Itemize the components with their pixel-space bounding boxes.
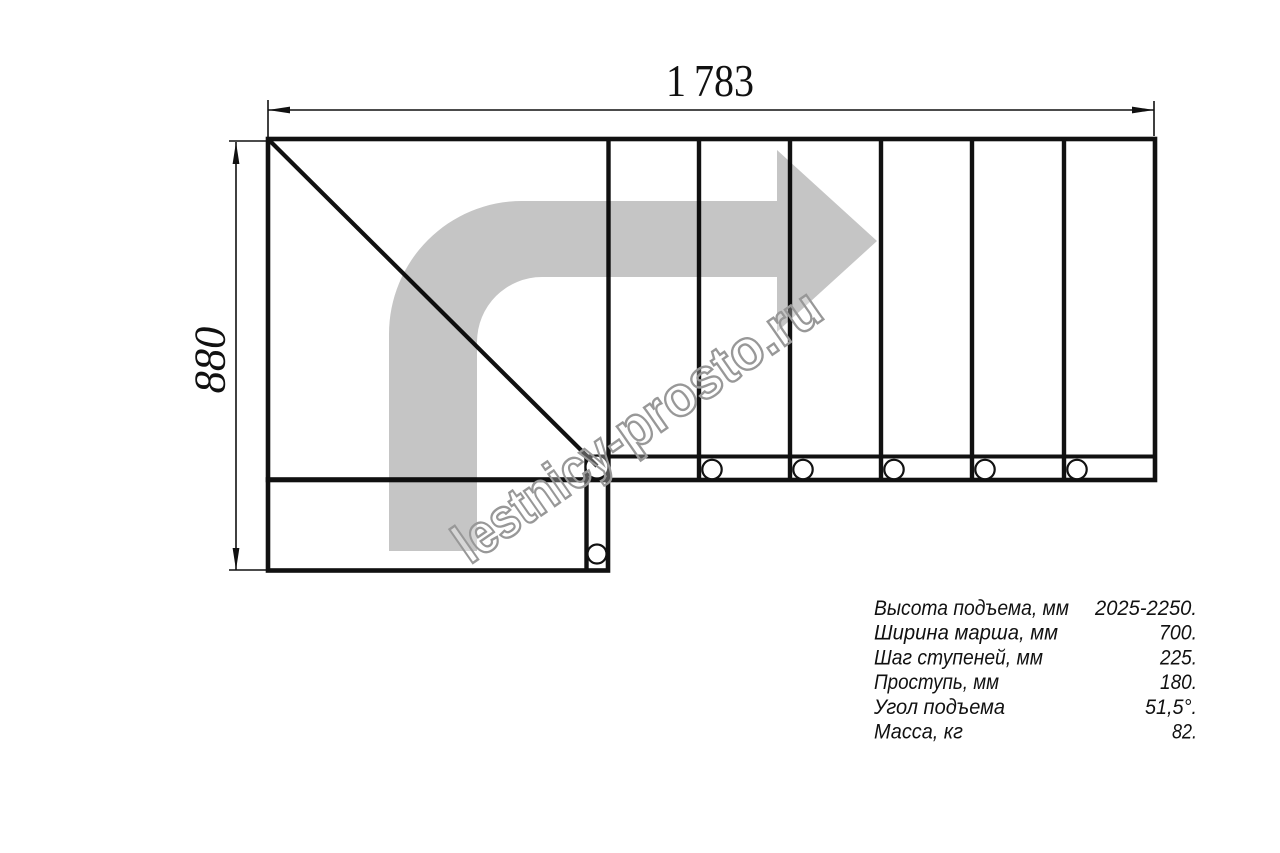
svg-text:2025-2250.: 2025-2250. — [1094, 596, 1197, 620]
svg-text:Проступь, мм: Проступь, мм — [874, 670, 999, 694]
svg-text:180.: 180. — [1160, 670, 1197, 694]
svg-text:225.: 225. — [1159, 645, 1197, 669]
svg-text:82.: 82. — [1172, 720, 1197, 744]
svg-text:1 783: 1 783 — [666, 55, 754, 106]
svg-text:Угол подъема: Угол подъема — [873, 695, 1005, 719]
svg-text:Шаг ступеней, мм: Шаг ступеней, мм — [874, 645, 1043, 669]
svg-text:Ширина марша, мм: Ширина марша, мм — [874, 621, 1058, 645]
svg-text:51,5°.: 51,5°. — [1145, 695, 1197, 719]
svg-text:Высота подъема, мм: Высота подъема, мм — [874, 596, 1069, 620]
svg-text:Масса, кг: Масса, кг — [874, 720, 963, 744]
svg-text:700.: 700. — [1159, 621, 1197, 645]
svg-text:880: 880 — [185, 327, 235, 394]
